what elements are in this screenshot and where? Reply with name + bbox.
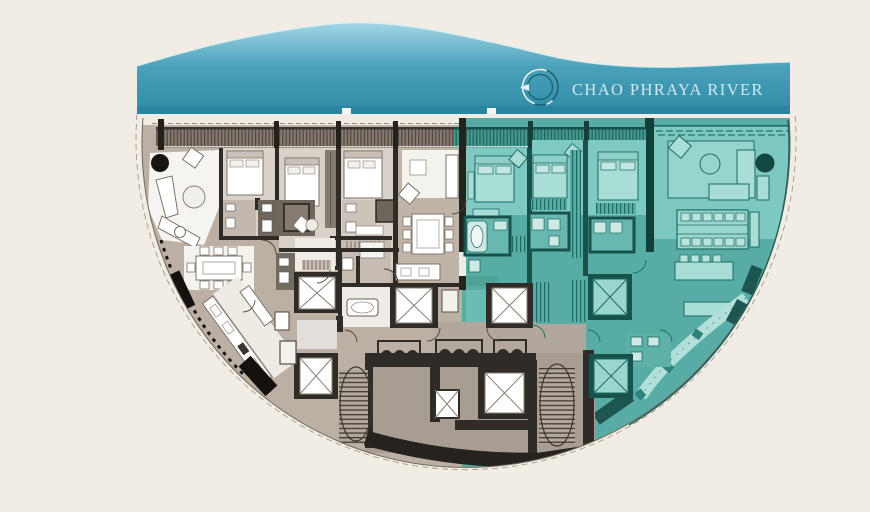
svg-text:CHAO PHRAYA RIVER: CHAO PHRAYA RIVER [572,80,764,99]
